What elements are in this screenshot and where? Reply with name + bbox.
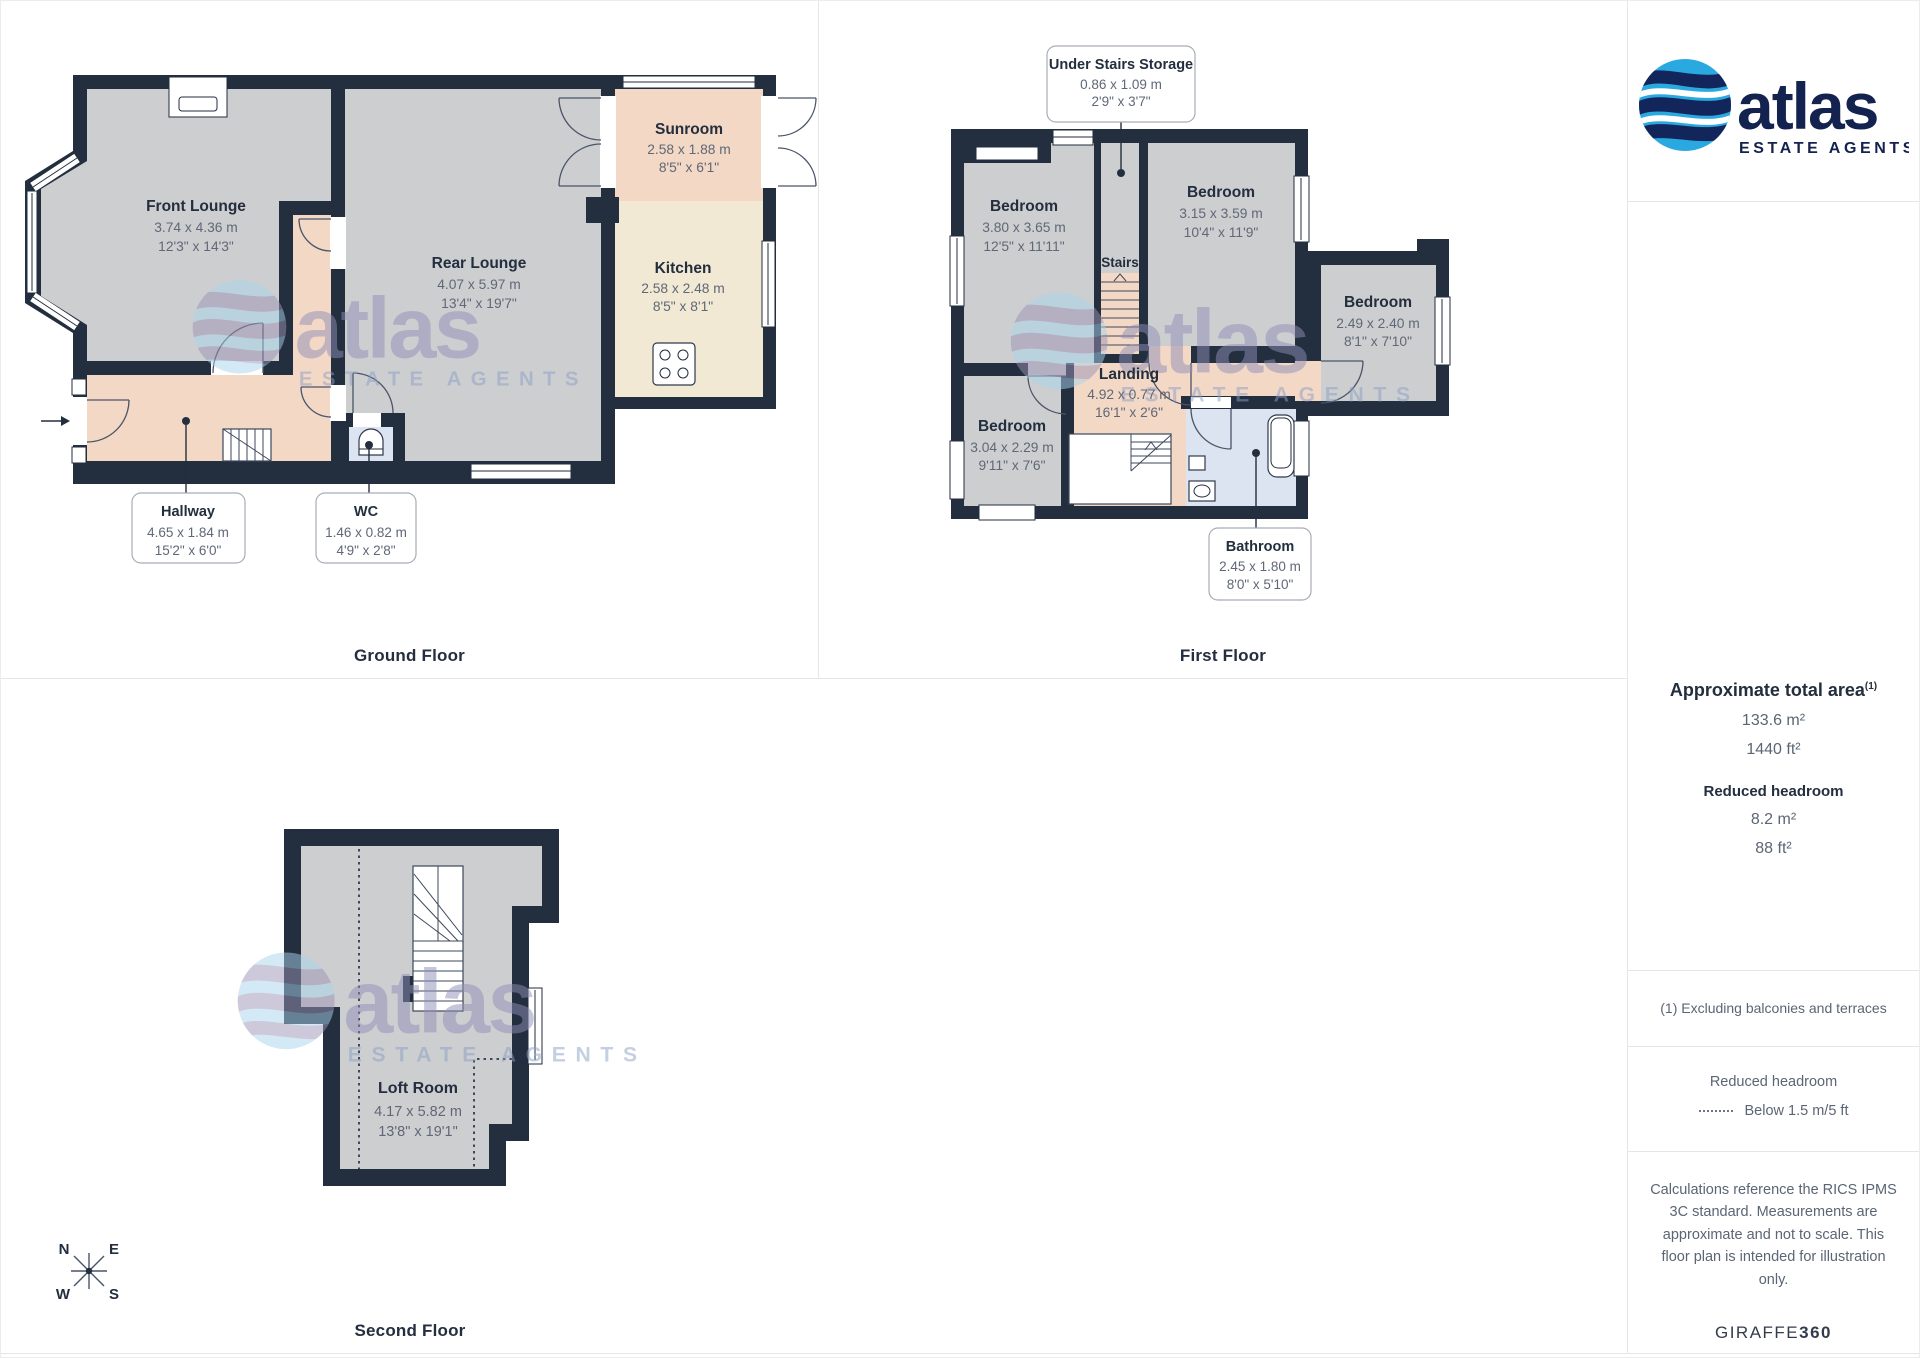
footnote-text: (1) Excluding balconies and terraces: [1628, 1000, 1919, 1016]
legend-item-text: Below 1.5 m/5 ft: [1745, 1103, 1849, 1119]
svg-text:Bedroom: Bedroom: [1187, 184, 1255, 201]
total-area-m2: 133.6 m²: [1628, 712, 1919, 730]
floor-title-ground: Ground Floor: [1, 646, 818, 666]
room-label-rear-lounge: Rear Lounge 4.07 x 5.97 m 13'4" x 19'7": [432, 255, 527, 311]
svg-text:Bedroom: Bedroom: [978, 418, 1046, 435]
bedroom-bl-window: [950, 441, 964, 499]
svg-text:Hallway: Hallway: [161, 504, 215, 520]
callout-bathroom: Bathroom 2.45 x 1.80 m 8'0" x 5'10": [1209, 528, 1311, 600]
info-sidebar: atlas ESTATE AGENTS Approximate total ar…: [1627, 1, 1919, 1354]
stove-icon: [653, 343, 695, 385]
stairs-icon: [223, 429, 271, 461]
svg-text:2.45 x 1.80 m: 2.45 x 1.80 m: [1219, 559, 1301, 574]
footnote-section: (1) Excluding balconies and terraces: [1628, 971, 1919, 1047]
svg-text:3.74 x 4.36 m: 3.74 x 4.36 m: [154, 220, 238, 235]
svg-text:2'9" x 3'7": 2'9" x 3'7": [1091, 94, 1150, 109]
bathroom-window: [1294, 421, 1309, 476]
reduced-headroom-ft2: 88 ft²: [1628, 840, 1919, 858]
compass-icon: N E W S: [56, 1241, 119, 1303]
room-label-front-lounge: Front Lounge 3.74 x 4.36 m 12'3" x 14'3": [146, 198, 246, 254]
svg-text:Rear Lounge: Rear Lounge: [432, 255, 527, 272]
svg-text:12'3" x 14'3": 12'3" x 14'3": [158, 239, 234, 254]
svg-text:13'8" x 19'1": 13'8" x 19'1": [378, 1124, 458, 1140]
svg-text:3.04 x 2.29 m: 3.04 x 2.29 m: [970, 440, 1054, 455]
svg-text:4.17 x 5.82 m: 4.17 x 5.82 m: [374, 1104, 462, 1120]
ground-floor-plan: Front Lounge 3.74 x 4.36 m 12'3" x 14'3"…: [1, 1, 818, 678]
second-floor-plan: Loft Room 4.17 x 5.82 m 13'8" x 19'1" N …: [1, 679, 1627, 1353]
floor-title-first: First Floor: [819, 646, 1627, 666]
svg-text:Bedroom: Bedroom: [990, 198, 1058, 215]
ground-floor-panel: Front Lounge 3.74 x 4.36 m 12'3" x 14'3"…: [1, 1, 819, 679]
bathtub-icon: [1268, 415, 1294, 477]
svg-text:Under Stairs Storage: Under Stairs Storage: [1049, 57, 1193, 73]
floor-title-second: Second Floor: [1, 1321, 819, 1341]
sink-icon: [1189, 481, 1215, 501]
rear-lounge-floor: [345, 89, 601, 461]
svg-text:12'5" x 11'11": 12'5" x 11'11": [983, 239, 1064, 254]
callout-wc: WC 1.46 x 0.82 m 4'9" x 2'8": [316, 493, 416, 563]
svg-text:0.86 x 1.09 m: 0.86 x 1.09 m: [1080, 77, 1162, 92]
svg-text:8'0" x 5'10": 8'0" x 5'10": [1227, 577, 1294, 592]
stairs-label: Stairs: [1101, 255, 1139, 270]
logo-wordmark: atlas: [1737, 69, 1877, 143]
cabinet-icon: [1189, 456, 1205, 470]
first-floor-plan: Bedroom 3.80 x 3.65 m 12'5" x 11'11" Bed…: [819, 1, 1627, 678]
floorplan-sheet: Front Lounge 3.74 x 4.36 m 12'3" x 14'3"…: [0, 0, 1920, 1358]
room-label-sunroom: Sunroom 2.58 x 1.88 m 8'5" x 6'1": [647, 121, 731, 175]
svg-text:Bathroom: Bathroom: [1226, 539, 1294, 555]
svg-text:10'4" x 11'9": 10'4" x 11'9": [1184, 225, 1259, 240]
logo-subtext: ESTATE AGENTS: [1739, 140, 1909, 157]
disclaimer-text: Calculations reference the RICS IPMS 3C …: [1647, 1179, 1900, 1291]
svg-text:13'4" x 19'7": 13'4" x 19'7": [441, 296, 517, 311]
area-summary-section: Approximate total area(1) 133.6 m² 1440 …: [1628, 202, 1919, 971]
room-label-bedroom-bl: Bedroom 3.04 x 2.29 m 9'11" x 7'6": [970, 418, 1054, 473]
giraffe360-brand: GIRAFFE360: [1628, 1323, 1919, 1343]
room-label-loft: Loft Room 4.17 x 5.82 m 13'8" x 19'1": [374, 1080, 462, 1140]
svg-text:4.65 x 1.84 m: 4.65 x 1.84 m: [147, 525, 229, 540]
french-door-arc: [778, 98, 816, 136]
svg-text:Sunroom: Sunroom: [655, 121, 723, 138]
svg-text:1.46 x 0.82 m: 1.46 x 0.82 m: [325, 525, 407, 540]
svg-text:Loft Room: Loft Room: [378, 1080, 458, 1097]
svg-text:Front Lounge: Front Lounge: [146, 198, 246, 215]
legend-row: Below 1.5 m/5 ft: [1628, 1103, 1919, 1119]
reduced-headroom-m2: 8.2 m²: [1628, 811, 1919, 829]
svg-text:2.49 x 2.40 m: 2.49 x 2.40 m: [1336, 316, 1420, 331]
svg-text:8'5" x 6'1": 8'5" x 6'1": [659, 160, 719, 175]
room-label-bedroom-right: Bedroom 2.49 x 2.40 m 8'1" x 7'10": [1336, 294, 1420, 349]
disclaimer-section: Calculations reference the RICS IPMS 3C …: [1628, 1152, 1919, 1353]
total-area-ft2: 1440 ft²: [1628, 741, 1919, 759]
svg-text:8'5" x 8'1": 8'5" x 8'1": [653, 299, 713, 314]
svg-text:2.58 x 2.48 m: 2.58 x 2.48 m: [641, 281, 725, 296]
svg-text:8'1" x 7'10": 8'1" x 7'10": [1344, 334, 1412, 349]
svg-text:4.07 x 5.97 m: 4.07 x 5.97 m: [437, 277, 521, 292]
second-floor-panel: Loft Room 4.17 x 5.82 m 13'8" x 19'1" N …: [1, 679, 1627, 1354]
svg-text:WC: WC: [354, 504, 379, 520]
first-floor-panel: Bedroom 3.80 x 3.65 m 12'5" x 11'11" Bed…: [819, 1, 1627, 679]
room-label-bedroom-tl: Bedroom 3.80 x 3.65 m 12'5" x 11'11": [982, 198, 1066, 254]
stairwell-void: [1069, 434, 1171, 504]
svg-text:9'11" x 7'6": 9'11" x 7'6": [979, 458, 1046, 473]
svg-text:3.15 x 3.59 m: 3.15 x 3.59 m: [1179, 206, 1263, 221]
legend-section: Reduced headroom Below 1.5 m/5 ft: [1628, 1047, 1919, 1152]
room-label-bedroom-tr: Bedroom 3.15 x 3.59 m 10'4" x 11'9": [1179, 184, 1263, 240]
svg-text:N: N: [59, 1241, 70, 1258]
dotted-line-icon: [1699, 1110, 1733, 1112]
svg-text:2.58 x 1.88 m: 2.58 x 1.88 m: [647, 142, 731, 157]
total-area-title: Approximate total area(1): [1628, 680, 1919, 701]
svg-text:Kitchen: Kitchen: [655, 260, 712, 277]
svg-text:3.80 x 3.65 m: 3.80 x 3.65 m: [982, 220, 1066, 235]
svg-text:16'1" x 2'6": 16'1" x 2'6": [1095, 405, 1163, 420]
svg-text:4.92 x 0.77 m: 4.92 x 0.77 m: [1087, 387, 1171, 402]
legend-title: Reduced headroom: [1628, 1074, 1919, 1090]
svg-text:S: S: [109, 1286, 119, 1303]
bedroom-right-floor: [1321, 265, 1436, 401]
svg-text:Bedroom: Bedroom: [1344, 294, 1412, 311]
svg-text:Landing: Landing: [1099, 366, 1159, 383]
callout-hallway: Hallway 4.65 x 1.84 m 15'2" x 6'0": [132, 493, 245, 563]
svg-text:15'2" x 6'0": 15'2" x 6'0": [155, 543, 222, 558]
atlas-logo: atlas ESTATE AGENTS: [1639, 47, 1909, 177]
svg-text:W: W: [56, 1286, 71, 1303]
room-label-landing: Landing 4.92 x 0.77 m 16'1" x 2'6": [1087, 366, 1171, 420]
reduced-headroom-title: Reduced headroom: [1628, 783, 1919, 800]
logo-section: atlas ESTATE AGENTS: [1628, 1, 1919, 202]
callout-under-stairs-storage: Under Stairs Storage 0.86 x 1.09 m 2'9" …: [1047, 46, 1195, 122]
svg-text:4'9" x 2'8": 4'9" x 2'8": [336, 543, 395, 558]
svg-text:E: E: [109, 1241, 119, 1258]
